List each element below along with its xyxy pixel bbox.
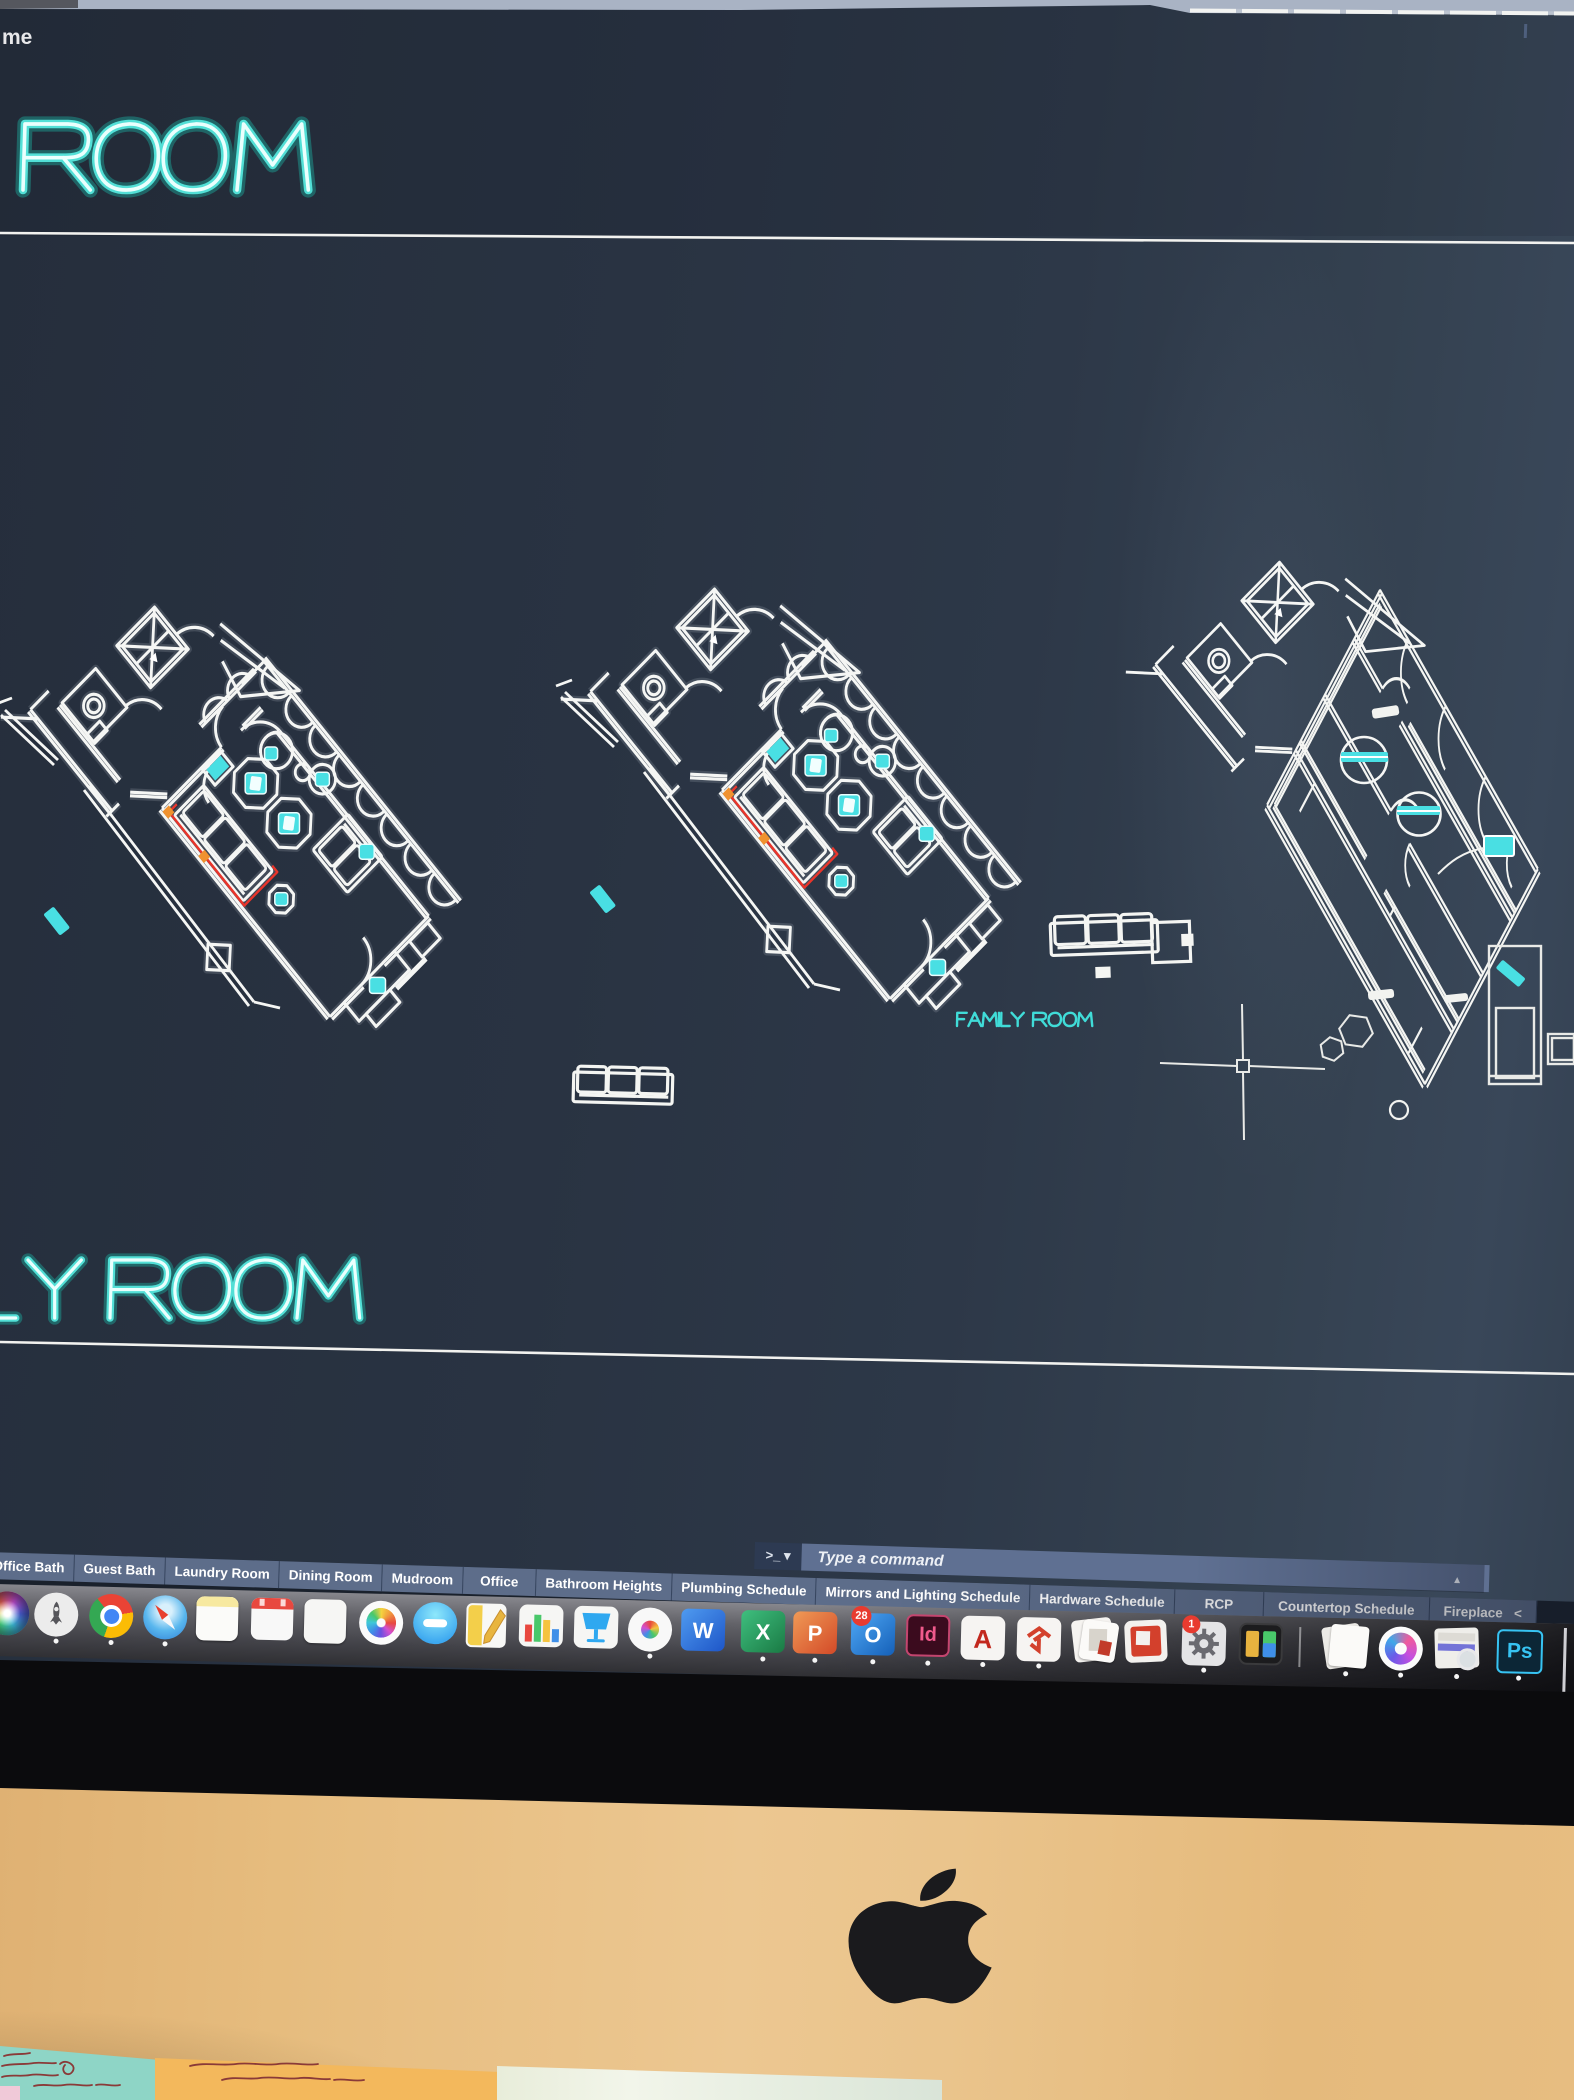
svg-text:me: me	[2, 26, 32, 49]
